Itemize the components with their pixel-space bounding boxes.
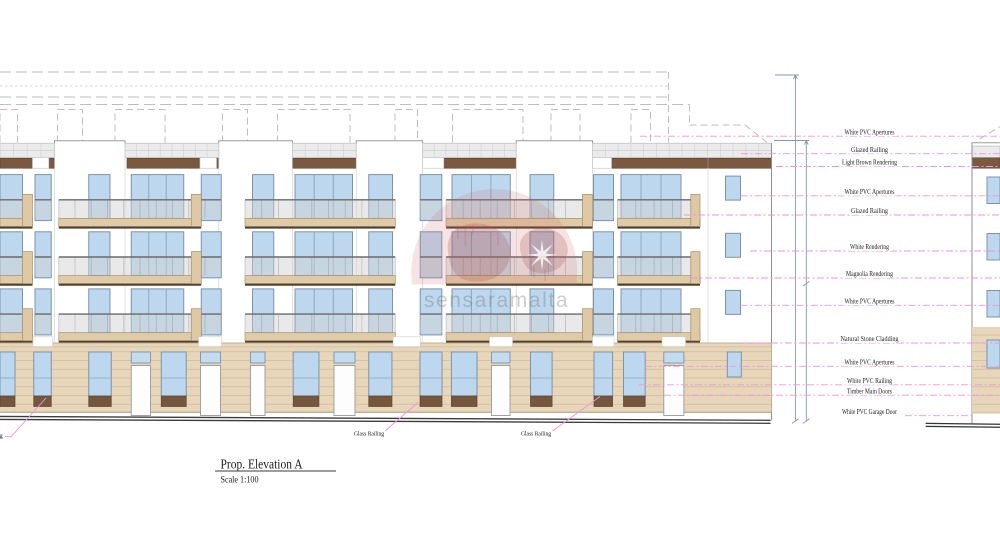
svg-text:Glazed Railing: Glazed Railing: [851, 207, 888, 215]
svg-text:Timber Main Doors: Timber Main Doors: [847, 387, 892, 395]
svg-text:Glass Railing: Glass Railing: [521, 431, 552, 438]
svg-text:Magnolia Rendering: Magnolia Rendering: [846, 270, 893, 278]
svg-text:White PVC Apertures: White PVC Apertures: [845, 297, 895, 305]
svg-text:White PVC Apertures: White PVC Apertures: [845, 128, 895, 136]
svg-text:White PVC Railing: White PVC Railing: [847, 377, 892, 385]
svg-text:White PVC Garage Door: White PVC Garage Door: [842, 408, 898, 416]
svg-text:Scale 1:100: Scale 1:100: [221, 475, 259, 485]
svg-text:White PVC Apertures: White PVC Apertures: [845, 358, 895, 366]
svg-text:Prop. Elevation A: Prop. Elevation A: [221, 457, 304, 472]
svg-text:White PVC Apertures: White PVC Apertures: [845, 188, 895, 196]
svg-text:Glass Railing: Glass Railing: [354, 431, 385, 438]
svg-text:Glazed Railing: Glazed Railing: [851, 146, 888, 154]
svg-text:Light Brown Rendering: Light Brown Rendering: [842, 159, 897, 167]
svg-text:Natural Stone Cladding: Natural Stone Cladding: [841, 335, 899, 343]
svg-text:White Rendering: White Rendering: [850, 243, 889, 251]
svg-text:sensaramalta: sensaramalta: [424, 289, 569, 312]
